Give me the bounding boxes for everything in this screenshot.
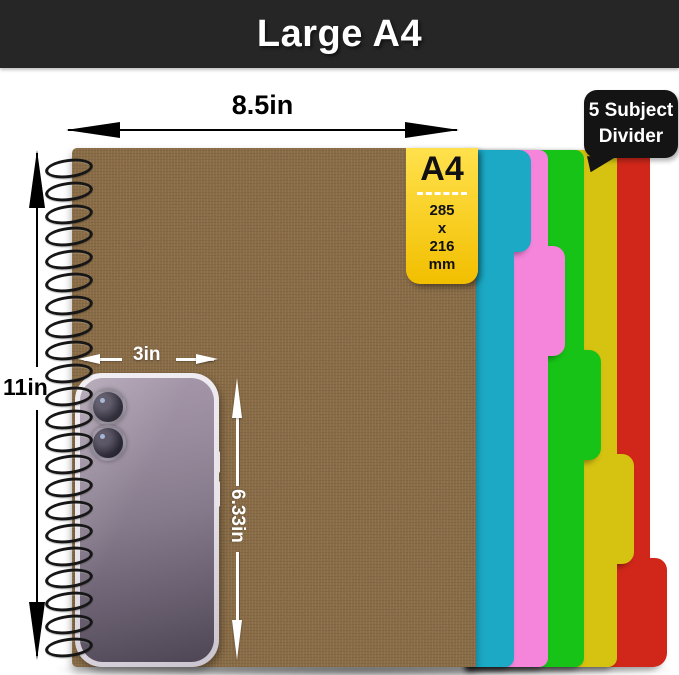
phone-height-line	[236, 552, 239, 624]
product-image: Large A4 8.5in 11in	[0, 0, 679, 675]
page-width-label: 8.5in	[66, 90, 459, 121]
phone-side-button	[216, 451, 220, 473]
spiral-coil-icon	[44, 567, 94, 592]
phone-side-button	[216, 481, 220, 507]
badge-separator: x	[438, 220, 446, 238]
white-arrowhead-down-icon	[232, 620, 242, 660]
header-title: Large A4	[257, 13, 422, 56]
spiral-coil-icon	[44, 544, 94, 569]
spiral-coil-icon	[44, 430, 94, 455]
spiral-binding	[45, 159, 93, 661]
lens-glint	[100, 434, 105, 439]
header-bar: Large A4	[0, 0, 679, 68]
phone	[75, 373, 219, 667]
phone-body	[80, 378, 214, 662]
arrowhead-up-icon	[29, 150, 45, 208]
spiral-coil-icon	[44, 612, 94, 637]
white-arrowhead-right-icon	[196, 354, 218, 364]
spiral-coil-icon	[44, 635, 94, 660]
page-width-dimension-line	[68, 129, 457, 131]
lens-glint	[100, 398, 105, 403]
divider-tab-yellow	[594, 454, 634, 564]
spiral-coil-icon	[44, 361, 94, 386]
divider-tab-red	[627, 558, 667, 667]
phone-camera-icon	[90, 389, 126, 425]
spiral-coil-icon	[44, 384, 94, 409]
spiral-coil-icon	[44, 225, 94, 250]
spiral-coil-icon	[44, 475, 94, 500]
phone-width-label: 3in	[133, 344, 160, 366]
arrowhead-right-icon	[405, 122, 459, 138]
divider-tab-cyan	[491, 150, 531, 252]
page-height-label: 11in	[3, 374, 48, 401]
spiral-coil-icon	[44, 316, 94, 341]
subject-divider-callout: 5 Subject Divider	[584, 90, 678, 158]
size-badge: A4 285 x 216 mm	[406, 148, 478, 284]
spiral-coil-icon	[44, 202, 94, 227]
spiral-coil-icon	[44, 498, 94, 523]
spiral-coil-icon	[44, 247, 94, 272]
badge-unit: mm	[429, 256, 456, 274]
spiral-coil-icon	[44, 156, 94, 181]
arrowhead-left-icon	[66, 122, 120, 138]
callout-line2: Divider	[586, 124, 676, 150]
phone-height-label: 6.33in	[226, 489, 248, 543]
spiral-coil-icon	[44, 407, 94, 432]
divider-tab-green	[561, 350, 601, 460]
spiral-coil-icon	[44, 179, 94, 204]
white-arrowhead-up-icon	[232, 378, 242, 418]
spiral-coil-icon	[44, 589, 94, 614]
spiral-coil-icon	[44, 521, 94, 546]
badge-height-mm: 285	[429, 202, 454, 220]
badge-width-mm: 216	[429, 238, 454, 256]
badge-size-label: A4	[420, 152, 463, 186]
badge-dashed-divider	[417, 192, 467, 195]
spiral-coil-icon	[44, 453, 94, 478]
phone-camera-icon	[90, 425, 126, 461]
divider-tab-pink	[525, 246, 565, 356]
white-arrowhead-left-icon	[78, 354, 100, 364]
arrowhead-down-icon	[29, 602, 45, 660]
spiral-coil-icon	[44, 293, 94, 318]
phone-height-line	[236, 414, 239, 486]
spiral-coil-icon	[44, 270, 94, 295]
callout-line1: 5 Subject	[586, 98, 676, 124]
